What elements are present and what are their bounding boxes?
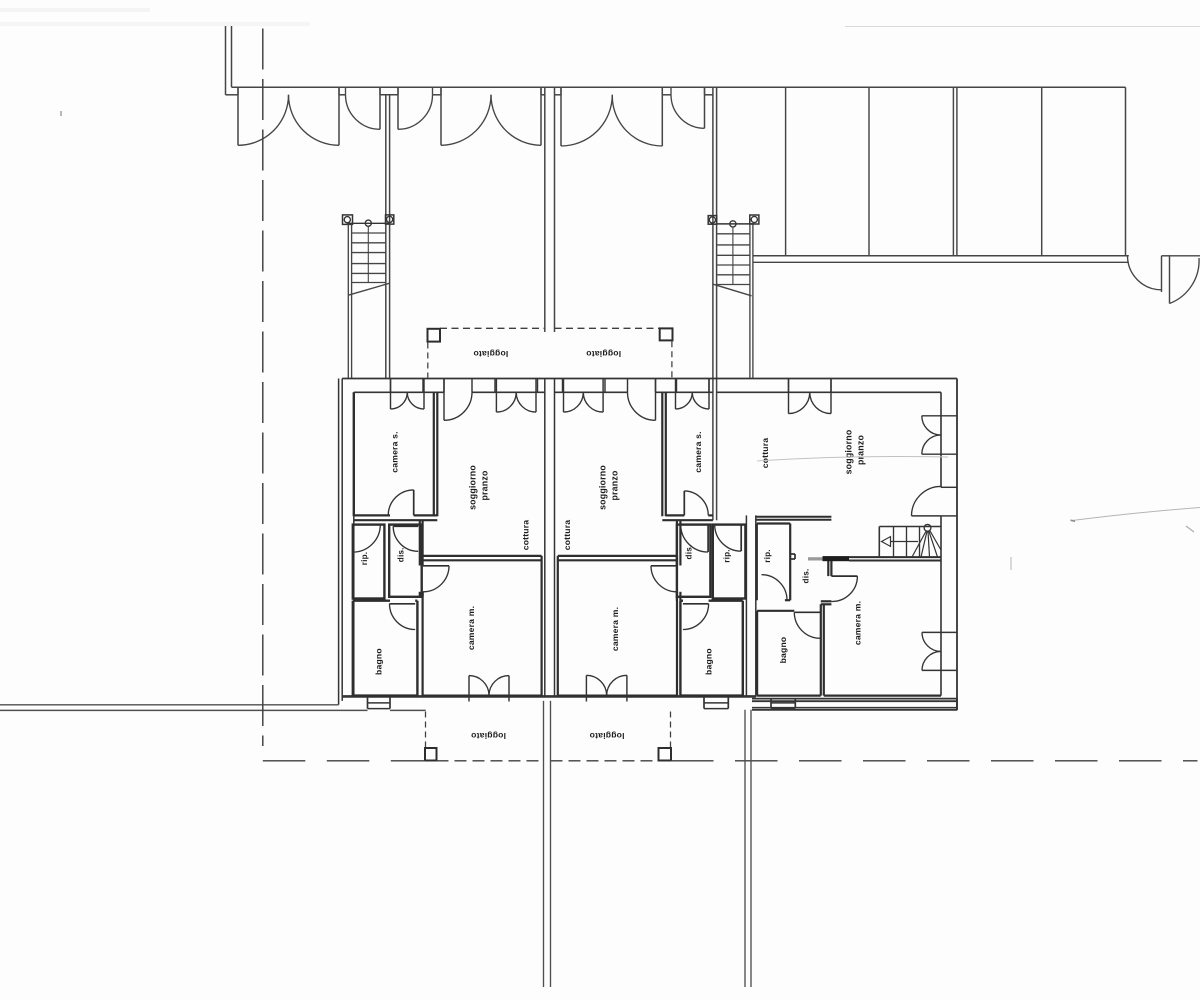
svg-text:loggiato: loggiato	[586, 349, 621, 359]
svg-text:bagno: bagno	[704, 648, 714, 675]
svg-text:rip.: rip.	[723, 549, 732, 563]
svg-text:cottura: cottura	[521, 520, 531, 551]
svg-text:pranzo: pranzo	[480, 470, 490, 500]
svg-text:cottura: cottura	[760, 438, 770, 469]
svg-text:dis.: dis.	[397, 547, 406, 562]
svg-text:cottura: cottura	[562, 520, 572, 551]
svg-text:bagno: bagno	[374, 648, 384, 675]
svg-text:soggiorno: soggiorno	[844, 429, 854, 474]
svg-text:bagno: bagno	[778, 637, 788, 664]
svg-text:camera m.: camera m.	[466, 606, 476, 650]
svg-text:camera s.: camera s.	[390, 431, 400, 472]
svg-text:loggiato: loggiato	[473, 349, 508, 359]
svg-text:camera m.: camera m.	[610, 607, 620, 651]
svg-text:loggiato: loggiato	[589, 731, 624, 741]
svg-text:dis.: dis.	[801, 569, 810, 584]
svg-text:soggiorno: soggiorno	[468, 465, 478, 510]
svg-text:pranzo: pranzo	[610, 470, 620, 500]
svg-text:camera m.: camera m.	[853, 601, 863, 645]
svg-text:rip.: rip.	[763, 549, 772, 563]
svg-text:camera s.: camera s.	[693, 431, 703, 472]
svg-text:dis.: dis.	[685, 545, 694, 560]
svg-text:pranzo: pranzo	[856, 435, 866, 465]
svg-text:rip.: rip.	[360, 552, 369, 566]
svg-text:soggiorno: soggiorno	[598, 465, 608, 510]
svg-text:loggiato: loggiato	[471, 731, 506, 741]
